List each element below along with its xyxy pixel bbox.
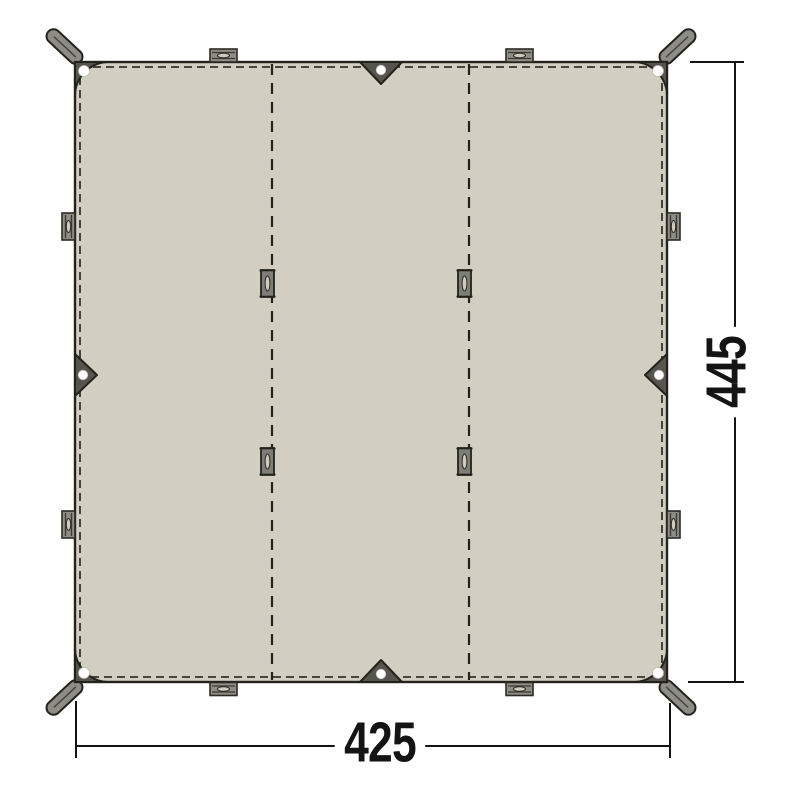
corner-strap-bottom-left — [44, 677, 86, 717]
corner-grommet-bottom-right — [653, 668, 664, 679]
triangle-grommet-bottom — [376, 669, 386, 679]
edge-tab-right-2 — [667, 511, 680, 538]
height-dimension-label: 445 — [699, 327, 756, 418]
edge-tab-left-2 — [62, 511, 75, 538]
edge-tab-right-1 — [667, 213, 680, 240]
edge-tab-top-1 — [210, 49, 237, 62]
corner-grommet-bottom-left — [79, 668, 90, 679]
triangle-grommet-right — [654, 370, 664, 380]
triangle-grommet-top — [376, 65, 386, 75]
diagram-canvas: 425 445 — [0, 0, 800, 800]
triangle-grommet-left — [78, 370, 88, 380]
width-dimension-label: 425 — [335, 715, 426, 772]
corner-grommet-top-right — [653, 66, 664, 77]
seam-loop-lower-right — [457, 448, 473, 475]
corner-strap-top-right — [657, 26, 699, 66]
tarp-drawing — [0, 0, 800, 800]
edge-tab-left-1 — [62, 213, 75, 240]
edge-tab-bottom-2 — [506, 683, 533, 696]
seam-loop-upper-left — [260, 270, 276, 297]
seam-loop-lower-left — [260, 448, 276, 475]
corner-strap-bottom-right — [657, 677, 699, 717]
edge-tab-bottom-1 — [210, 683, 237, 696]
tarp-body — [75, 62, 667, 682]
edge-tab-top-2 — [506, 49, 533, 62]
seam-loop-upper-right — [457, 270, 473, 297]
corner-grommet-top-left — [79, 66, 90, 77]
corner-strap-top-left — [44, 26, 86, 66]
